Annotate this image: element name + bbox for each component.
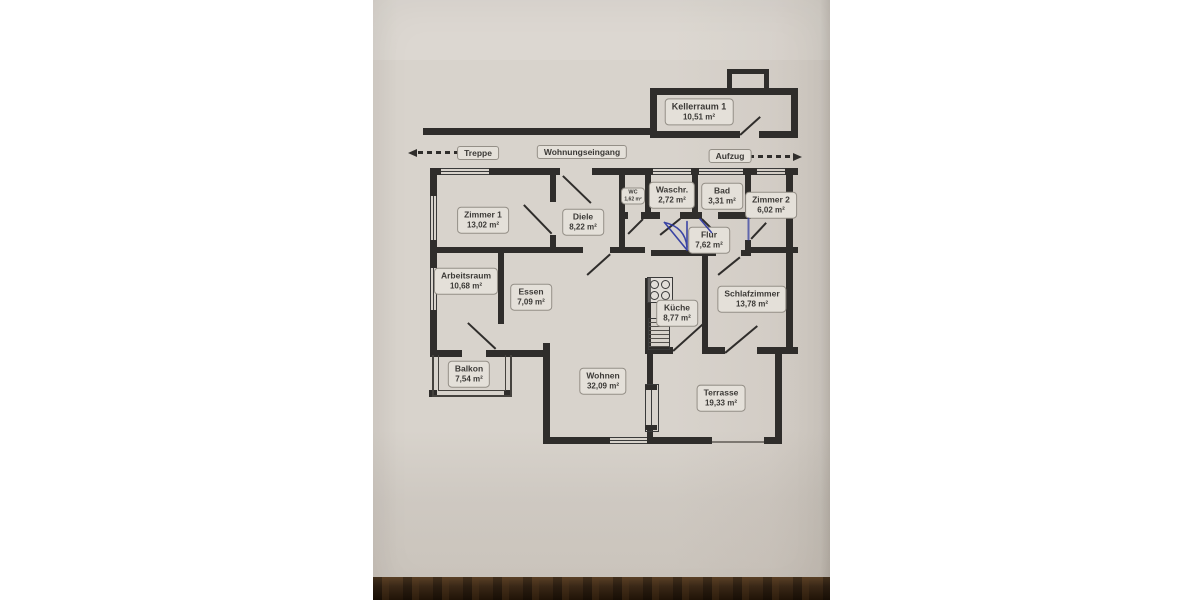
room-area: 7,62 m² [695, 240, 723, 250]
door-frame-block [645, 425, 657, 430]
treppe-arrow-head-icon [408, 149, 417, 157]
wall-segment [556, 247, 583, 253]
room-name: Zimmer 2 [752, 195, 790, 206]
wall-segment [791, 88, 798, 138]
room-name: Zimmer 1 [464, 210, 502, 221]
wall-segment [785, 168, 798, 175]
room-label-zimmer-2: Zimmer 2 6,02 m² [745, 192, 797, 219]
room-name: Balkon [455, 364, 483, 375]
wall-segment [543, 437, 610, 444]
wall-segment [702, 256, 708, 354]
terrace-door-icon [645, 384, 659, 432]
burner-icon [661, 280, 670, 289]
wall-segment [430, 310, 437, 357]
room-label-waschraum: Waschr. 2,72 m² [649, 182, 695, 209]
room-area: 7,54 m² [455, 374, 483, 384]
wall-segment [647, 430, 653, 444]
room-label-kueche: Küche 8,77 m² [656, 300, 698, 327]
room-label-schlafzimmer: Schlafzimmer 13,78 m² [717, 286, 786, 313]
terrace-edge-line [712, 441, 764, 443]
room-label-diele: Diele 8,22 m² [562, 209, 604, 236]
wall-segment [619, 174, 625, 253]
wall-segment [650, 88, 798, 95]
wall-segment [764, 437, 782, 444]
room-name: Bad [708, 186, 736, 197]
wall-segment [745, 240, 751, 253]
room-name: Diele [569, 212, 597, 223]
wall-segment [647, 353, 653, 386]
room-area: 1,62 m² [624, 196, 642, 202]
room-label-zimmer-1: Zimmer 1 13,02 m² [457, 207, 509, 234]
room-label-bad: Bad 3,31 m² [701, 183, 743, 210]
room-label-wohnen: Wohnen 32,09 m² [579, 368, 626, 395]
wall-segment [650, 88, 657, 138]
wall-segment [550, 235, 556, 253]
wall-segment [691, 168, 699, 175]
wall-segment [543, 343, 550, 444]
wall-segment [650, 131, 740, 138]
wall-segment [489, 168, 560, 175]
room-name: Essen [517, 287, 545, 298]
room-name: Terrasse [704, 388, 739, 399]
room-name: Waschr. [656, 185, 688, 196]
screenshot-stage: Treppe Wohnungseingang Aufzug Kellerraum… [0, 0, 1200, 600]
wall-segment [743, 168, 757, 175]
room-label-flur: Flur 7,62 m² [688, 227, 730, 254]
room-label-arbeitsraum: Arbeitsraum 10,68 m² [434, 268, 498, 295]
wall-segment [430, 168, 441, 175]
burner-icon [650, 291, 659, 300]
wall-segment [727, 69, 769, 74]
wall-segment [423, 128, 653, 135]
wall-segment [430, 240, 437, 268]
label-treppe: Treppe [457, 146, 499, 160]
window-symbol [610, 437, 647, 444]
label-wohnungseingang: Wohnungseingang [537, 145, 627, 159]
room-label-balkon: Balkon 7,54 m² [448, 361, 490, 388]
window-symbol [653, 168, 691, 175]
room-label-wc: WC 1,62 m² [621, 187, 645, 204]
paper-edge-shadow [820, 0, 830, 577]
room-area: 19,33 m² [704, 398, 739, 408]
wood-table-strip [373, 577, 830, 600]
room-label-essen: Essen 7,09 m² [510, 284, 552, 311]
aufzug-arrow [749, 155, 793, 158]
wall-segment [708, 347, 725, 354]
room-area: 32,09 m² [586, 381, 619, 391]
room-area: 10,51 m² [672, 113, 727, 123]
room-name: Arbeitsraum [441, 271, 491, 282]
window-symbol [430, 196, 437, 240]
wall-segment [498, 253, 504, 324]
label-aufzug: Aufzug [709, 149, 752, 163]
room-area: 6,02 m² [752, 205, 790, 215]
wall-segment [653, 437, 712, 444]
aufzug-arrow-head-icon [793, 153, 802, 161]
room-label-kellerraum: Kellerraum 1 10,51 m² [665, 98, 734, 125]
room-name: Küche [663, 303, 691, 314]
room-name: Flur [695, 230, 723, 241]
room-area: 13,78 m² [724, 299, 779, 309]
wall-segment [680, 212, 702, 219]
wall-segment [610, 247, 645, 253]
room-area: 2,72 m² [656, 195, 688, 205]
room-area: 3,31 m² [708, 196, 736, 206]
wall-segment [592, 168, 653, 175]
room-area: 10,68 m² [441, 281, 491, 291]
room-label-terrasse: Terrasse 19,33 m² [697, 385, 746, 412]
room-area: 8,77 m² [663, 313, 691, 323]
burner-icon [661, 291, 670, 300]
treppe-arrow [418, 151, 458, 154]
room-name: Kellerraum 1 [672, 101, 727, 112]
wall-segment [775, 354, 782, 444]
wall-segment [430, 247, 556, 253]
wall-segment [550, 174, 556, 202]
window-symbol [757, 168, 785, 175]
room-area: 7,09 m² [517, 297, 545, 307]
room-name: Schlafzimmer [724, 289, 779, 300]
room-area: 13,02 m² [464, 220, 502, 230]
door-frame-block [645, 385, 657, 390]
room-area: 8,22 m² [569, 222, 597, 232]
room-name: WC [624, 189, 642, 196]
window-symbol [699, 168, 743, 175]
burner-icon [650, 280, 659, 289]
room-name: Wohnen [586, 371, 619, 382]
window-symbol [441, 168, 489, 175]
